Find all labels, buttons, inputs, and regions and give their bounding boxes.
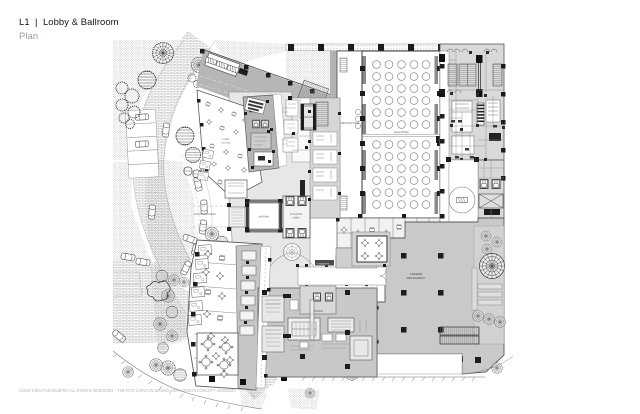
svg-text:ELEVATOR: ELEVATOR <box>290 213 302 216</box>
svg-text:PORTE COCHERE: PORTE COCHERE <box>194 213 216 216</box>
svg-text:RESTAURANT: RESTAURANT <box>407 276 426 280</box>
svg-text:ARRIVAL: ARRIVAL <box>259 216 270 219</box>
svg-text:LOUNGE: LOUNGE <box>221 141 232 144</box>
svg-text:CONCIERGE: CONCIERGE <box>317 262 330 265</box>
svg-text:LOBBY: LOBBY <box>292 216 300 219</box>
svg-text:BALLROOM: BALLROOM <box>394 131 408 134</box>
